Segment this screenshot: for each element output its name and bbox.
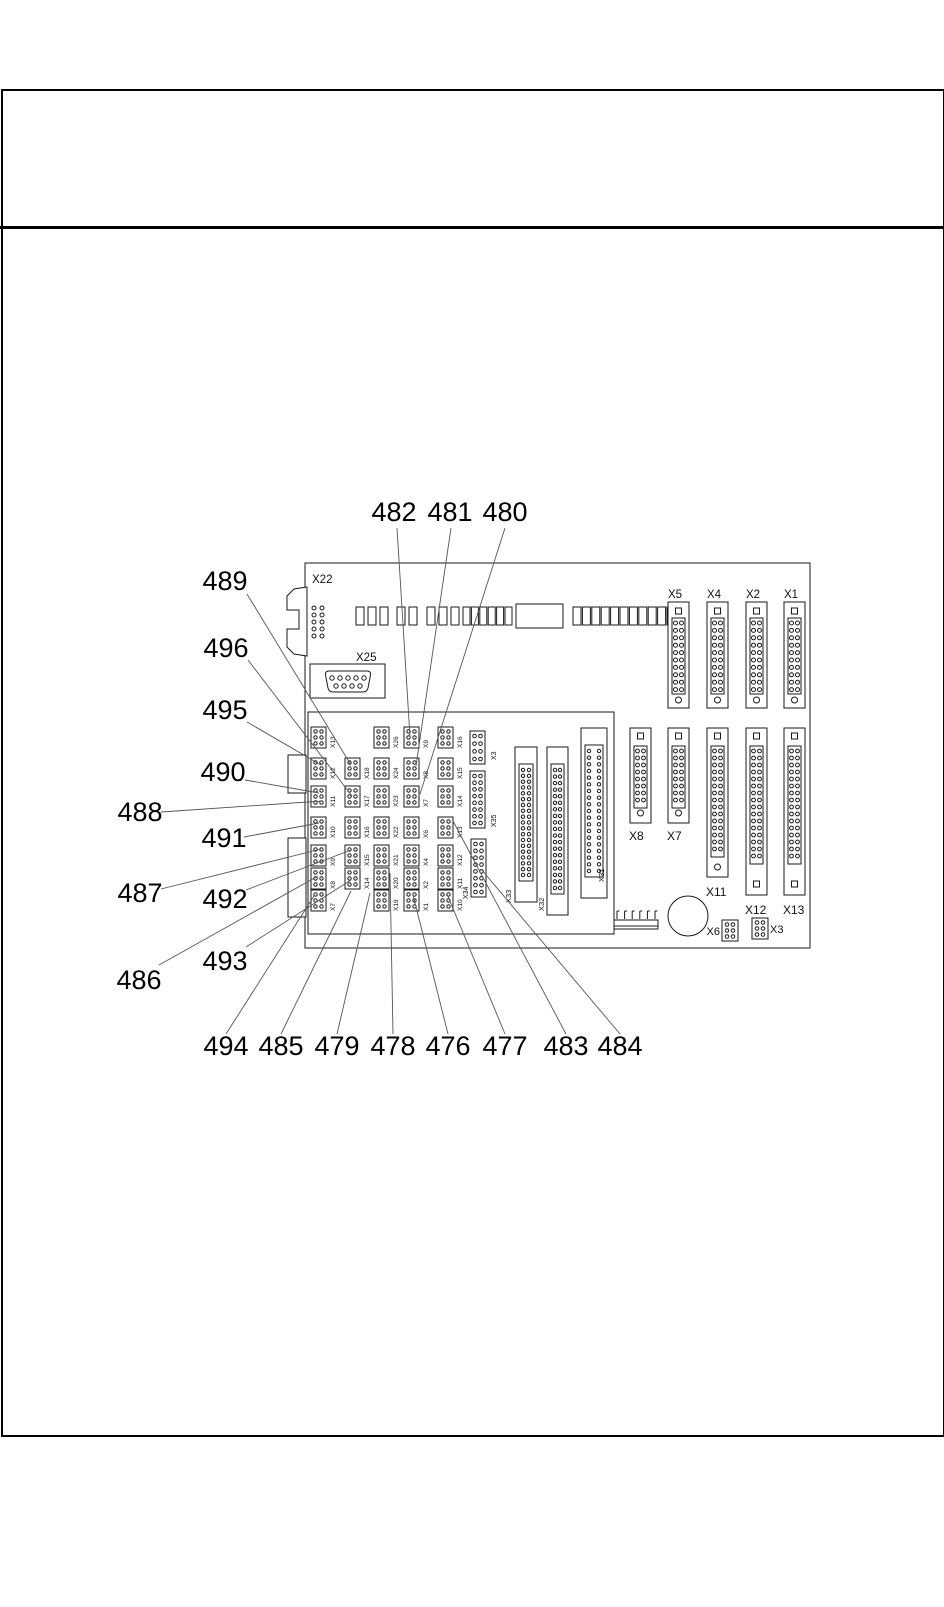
jumper-block-label: X15: [364, 854, 371, 866]
jumper-block-label: X14: [457, 795, 464, 807]
callout-493: 493: [202, 946, 247, 976]
connector-x5-label: X5: [668, 589, 682, 601]
connector-x31: X31: [581, 728, 607, 898]
jumper-block-label: X11: [330, 796, 337, 807]
callout-488: 488: [117, 797, 162, 827]
connector-x2-label: X2: [746, 589, 760, 601]
pcb-connector-diagram: X22X25X5X4X2X1X13X12X11X10X9X8X7X18X17X1…: [0, 0, 944, 1607]
callout-485: 485: [258, 1031, 303, 1061]
connector-x4: X4: [707, 589, 728, 708]
jumper-block-label: X9: [423, 740, 430, 748]
battery-circle: [668, 896, 708, 936]
jumper-block-label: X16: [457, 736, 464, 748]
jumper-label: X6: [707, 926, 720, 938]
pin-strip-label: X35: [491, 814, 498, 827]
connector-label: X31: [597, 869, 606, 882]
callout-492: 492: [202, 884, 247, 914]
jumper-block-label: X21: [393, 854, 400, 866]
connector-x12: X12: [745, 728, 767, 917]
connector-x7-label: X7: [667, 829, 682, 843]
callout-482: 482: [371, 497, 416, 527]
connector-x11-label: X11: [706, 885, 727, 899]
callout-487: 487: [117, 878, 162, 908]
connector-x4-label: X4: [707, 589, 722, 601]
callout-494: 494: [203, 1031, 248, 1061]
jumper-block-label: X1: [423, 903, 430, 911]
callout-476: 476: [425, 1031, 470, 1061]
component-row: [356, 604, 684, 628]
jumper-block-label: X4: [423, 858, 430, 866]
jumper-block-label: X20: [393, 877, 400, 889]
jumper-block-label: X13: [457, 826, 464, 838]
connector-x5: X5: [668, 589, 689, 708]
connector-x2: X2: [746, 589, 767, 708]
callout-481: 481: [427, 497, 472, 527]
pin-strip-label: X34: [463, 886, 470, 899]
jumper-block-label: X18: [364, 767, 371, 779]
connector-x25-label: X25: [356, 652, 376, 664]
pin-strip-label: X3: [491, 751, 498, 760]
callout-479: 479: [314, 1031, 359, 1061]
jumper-block-label: X7: [423, 799, 430, 807]
callout-495: 495: [202, 695, 247, 725]
jumper-block-label: X6: [423, 830, 430, 838]
jumper-block-label: X8: [330, 881, 337, 889]
callout-480: 480: [482, 497, 527, 527]
jumper-label: X3: [770, 924, 783, 936]
connector-x8-label: X8: [629, 829, 644, 843]
jumper-block-label: X10: [330, 826, 337, 838]
jumper-block-label: X24: [393, 767, 400, 779]
callout-483: 483: [543, 1031, 588, 1061]
callout-491: 491: [201, 823, 246, 853]
callout-496: 496: [203, 633, 248, 663]
connector-x12-label: X12: [745, 903, 767, 917]
callout-484: 484: [597, 1031, 642, 1061]
connector-x1-label: X1: [784, 589, 798, 601]
jumper-block-label: X10: [457, 899, 464, 911]
jumper-block-label: X17: [364, 795, 371, 807]
callout-489: 489: [202, 566, 247, 596]
connector-x1: X1: [784, 589, 805, 708]
callout-477: 477: [482, 1031, 527, 1061]
manual-page: X22X25X5X4X2X1X13X12X11X10X9X8X7X18X17X1…: [0, 0, 944, 1607]
connector-x13: X13: [783, 728, 805, 917]
jumper-block-label: X19: [393, 899, 400, 911]
jumper-block-label: X7: [330, 903, 337, 911]
jumper-block-label: X22: [393, 826, 400, 838]
connector-x13-label: X13: [783, 903, 805, 917]
jumper-block-label: X9: [330, 858, 337, 866]
jumper-block-label: X26: [393, 736, 400, 748]
jumper-block-label: X23: [393, 795, 400, 807]
jumper-block-label: X13: [330, 736, 337, 748]
connector-label: X32: [537, 898, 546, 911]
callout-478: 478: [370, 1031, 415, 1061]
callout-490: 490: [200, 757, 245, 787]
connector-x22-label: X22: [312, 574, 332, 586]
jumper-block-label: X2: [423, 881, 430, 889]
jumper-block-label: X12: [457, 854, 464, 866]
connector-x11: X11: [706, 728, 728, 899]
jumper-block-label: X16: [364, 826, 371, 838]
jumper-block-label: X14: [364, 877, 371, 889]
jumper-block-label: X15: [457, 767, 464, 779]
callout-486: 486: [116, 965, 161, 995]
